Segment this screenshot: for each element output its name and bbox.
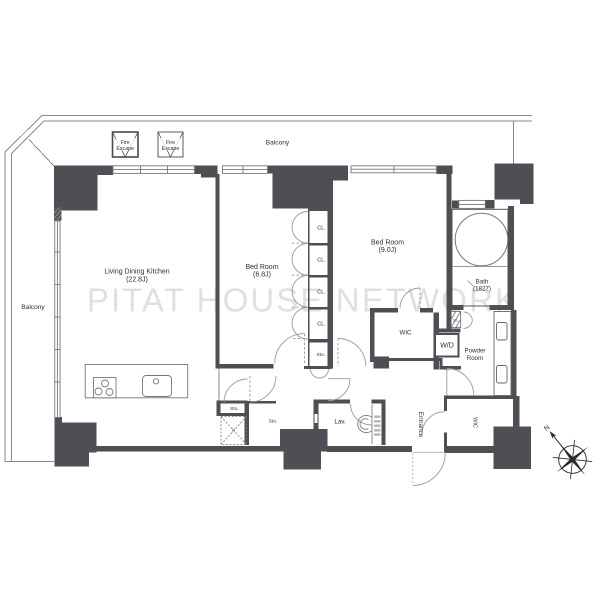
svg-text:R: R (232, 429, 236, 435)
svg-text:Sto.: Sto. (316, 352, 325, 358)
svg-text:Lav.: Lav. (334, 419, 346, 426)
svg-text:Bath: Bath (476, 279, 489, 286)
svg-text:(1827): (1827) (473, 286, 491, 293)
svg-text:CL.: CL. (317, 322, 325, 328)
svg-text:(9.0J): (9.0J) (379, 247, 397, 254)
svg-text:Powder: Powder (465, 348, 486, 355)
svg-text:Balcony: Balcony (21, 304, 45, 311)
svg-text:Fire: Fire (121, 140, 130, 146)
svg-text:Bed Room: Bed Room (245, 264, 278, 271)
svg-text:Room: Room (467, 355, 484, 362)
svg-text:PITAT HOUSE NETWORK: PITAT HOUSE NETWORK (87, 282, 519, 319)
svg-text:(6.8J): (6.8J) (253, 271, 271, 278)
svg-text:WIC: WIC (399, 330, 412, 337)
svg-text:CL.: CL. (317, 258, 325, 264)
svg-text:Bed Room: Bed Room (371, 240, 404, 247)
svg-text:W/D: W/D (440, 342, 454, 349)
svg-text:Escape: Escape (162, 146, 180, 152)
svg-text:WIC: WIC (472, 417, 478, 428)
svg-text:CL.: CL. (317, 226, 325, 232)
svg-text:Sto.: Sto. (453, 319, 459, 323)
svg-text:CL.: CL. (317, 290, 325, 296)
svg-text:Sto.: Sto. (230, 406, 239, 412)
svg-text:Balcony: Balcony (266, 140, 290, 147)
svg-text:Escape: Escape (116, 146, 134, 152)
svg-text:Sto.: Sto. (269, 418, 278, 424)
svg-text:Entrance: Entrance (417, 412, 424, 438)
svg-text:(22.8J): (22.8J) (126, 277, 148, 284)
svg-text:Fire: Fire (166, 140, 175, 146)
svg-text:Living Dining Kitchen: Living Dining Kitchen (104, 269, 169, 276)
